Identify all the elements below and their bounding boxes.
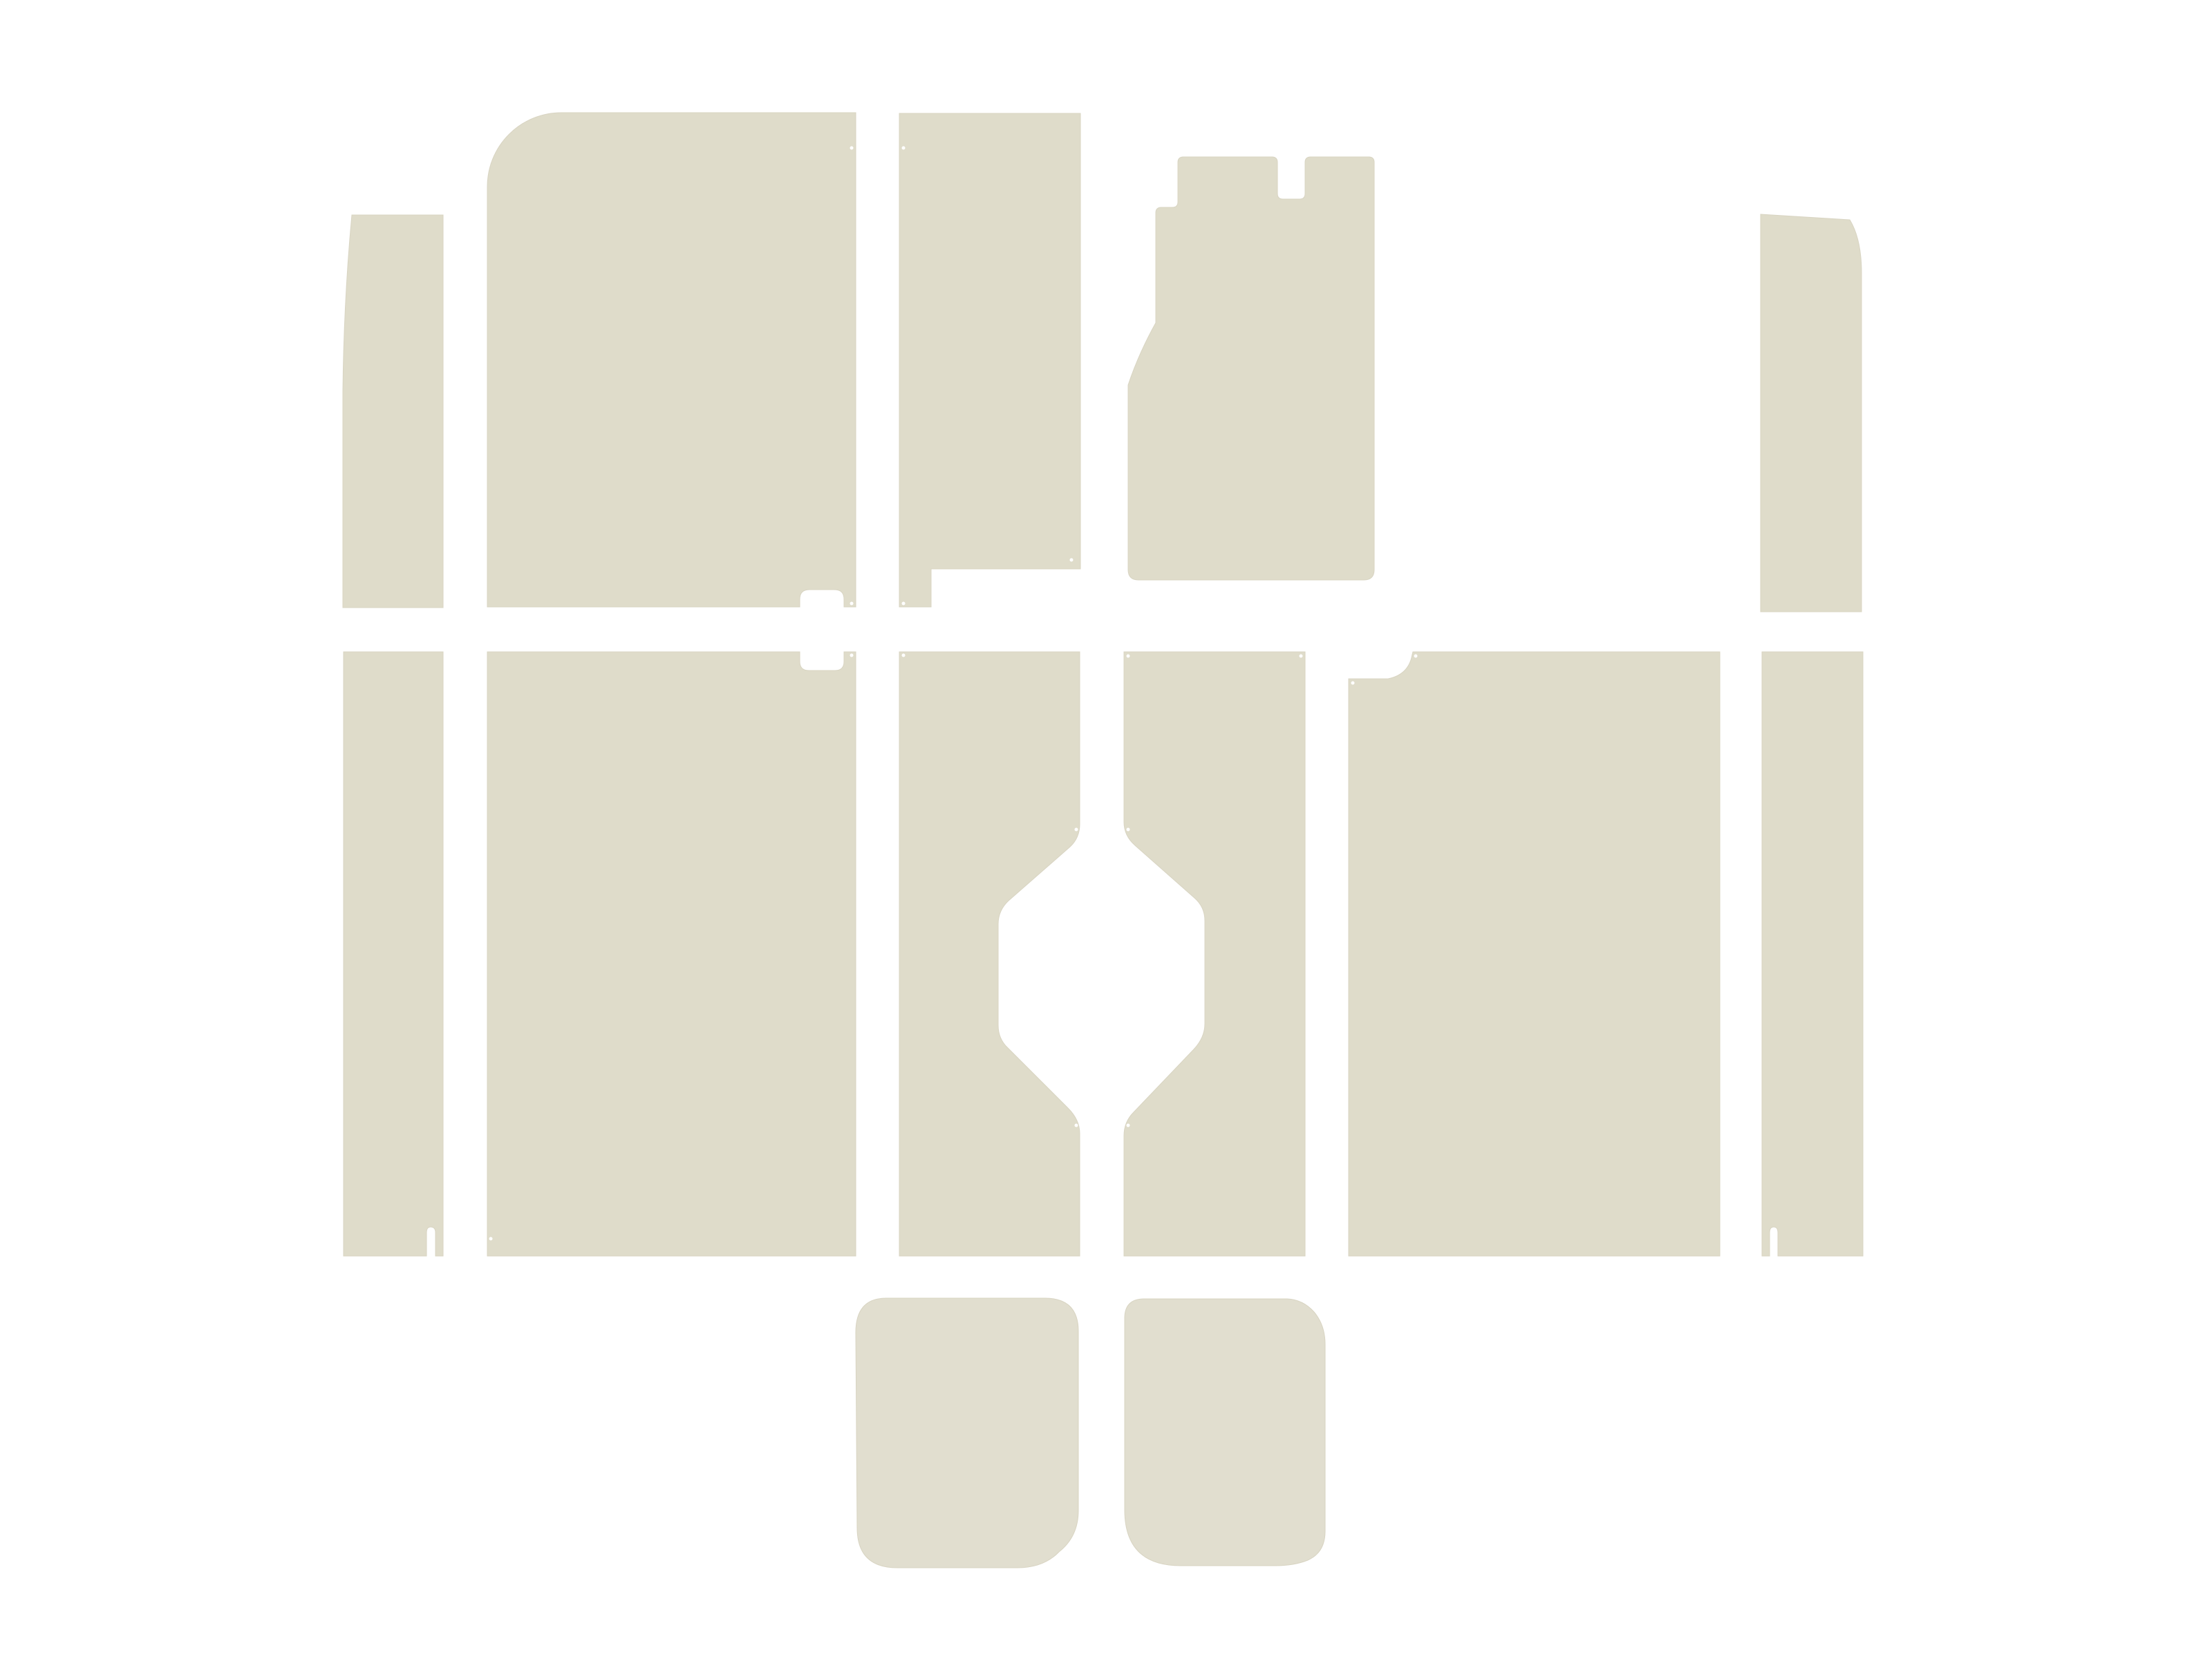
punch-hole bbox=[850, 602, 854, 606]
punch-hole bbox=[1127, 655, 1130, 658]
punch-hole bbox=[902, 654, 906, 657]
punch-hole bbox=[1300, 655, 1303, 658]
punch-hole bbox=[1075, 828, 1078, 832]
punch-hole bbox=[1127, 828, 1130, 832]
center-floor-panel-left-of-shifter bbox=[899, 652, 1080, 1256]
punch-hole bbox=[902, 147, 906, 150]
front-floor-panel-left bbox=[487, 113, 856, 607]
side-strip-rear-right bbox=[1762, 652, 1863, 1256]
punch-hole bbox=[1070, 559, 1074, 562]
side-strip-front-left bbox=[343, 215, 443, 608]
punch-hole bbox=[1351, 682, 1355, 685]
punch-hole bbox=[489, 1237, 493, 1241]
main-floor-panel-right bbox=[1349, 652, 1720, 1256]
carpet-pieces-group bbox=[343, 113, 1863, 1568]
punch-hole bbox=[850, 654, 854, 657]
side-strip-front-right bbox=[1761, 214, 1862, 612]
main-floor-panel-left bbox=[487, 652, 856, 1256]
firewall-tunnel-panel bbox=[1128, 157, 1374, 580]
foot-mat-left bbox=[856, 1298, 1078, 1568]
side-strip-rear-left bbox=[344, 652, 443, 1256]
carpet-kit-product-image bbox=[0, 0, 2212, 1659]
punch-hole bbox=[902, 602, 906, 606]
punch-hole bbox=[1075, 1124, 1078, 1127]
foot-mat-right bbox=[1125, 1299, 1325, 1566]
center-floor-panel-right-of-shifter bbox=[1124, 652, 1305, 1256]
punch-hole bbox=[1414, 655, 1418, 658]
punch-hole bbox=[1127, 1124, 1130, 1127]
punch-hole bbox=[850, 147, 854, 150]
front-floor-panel-center bbox=[899, 113, 1080, 607]
kit-canvas bbox=[0, 0, 2212, 1659]
